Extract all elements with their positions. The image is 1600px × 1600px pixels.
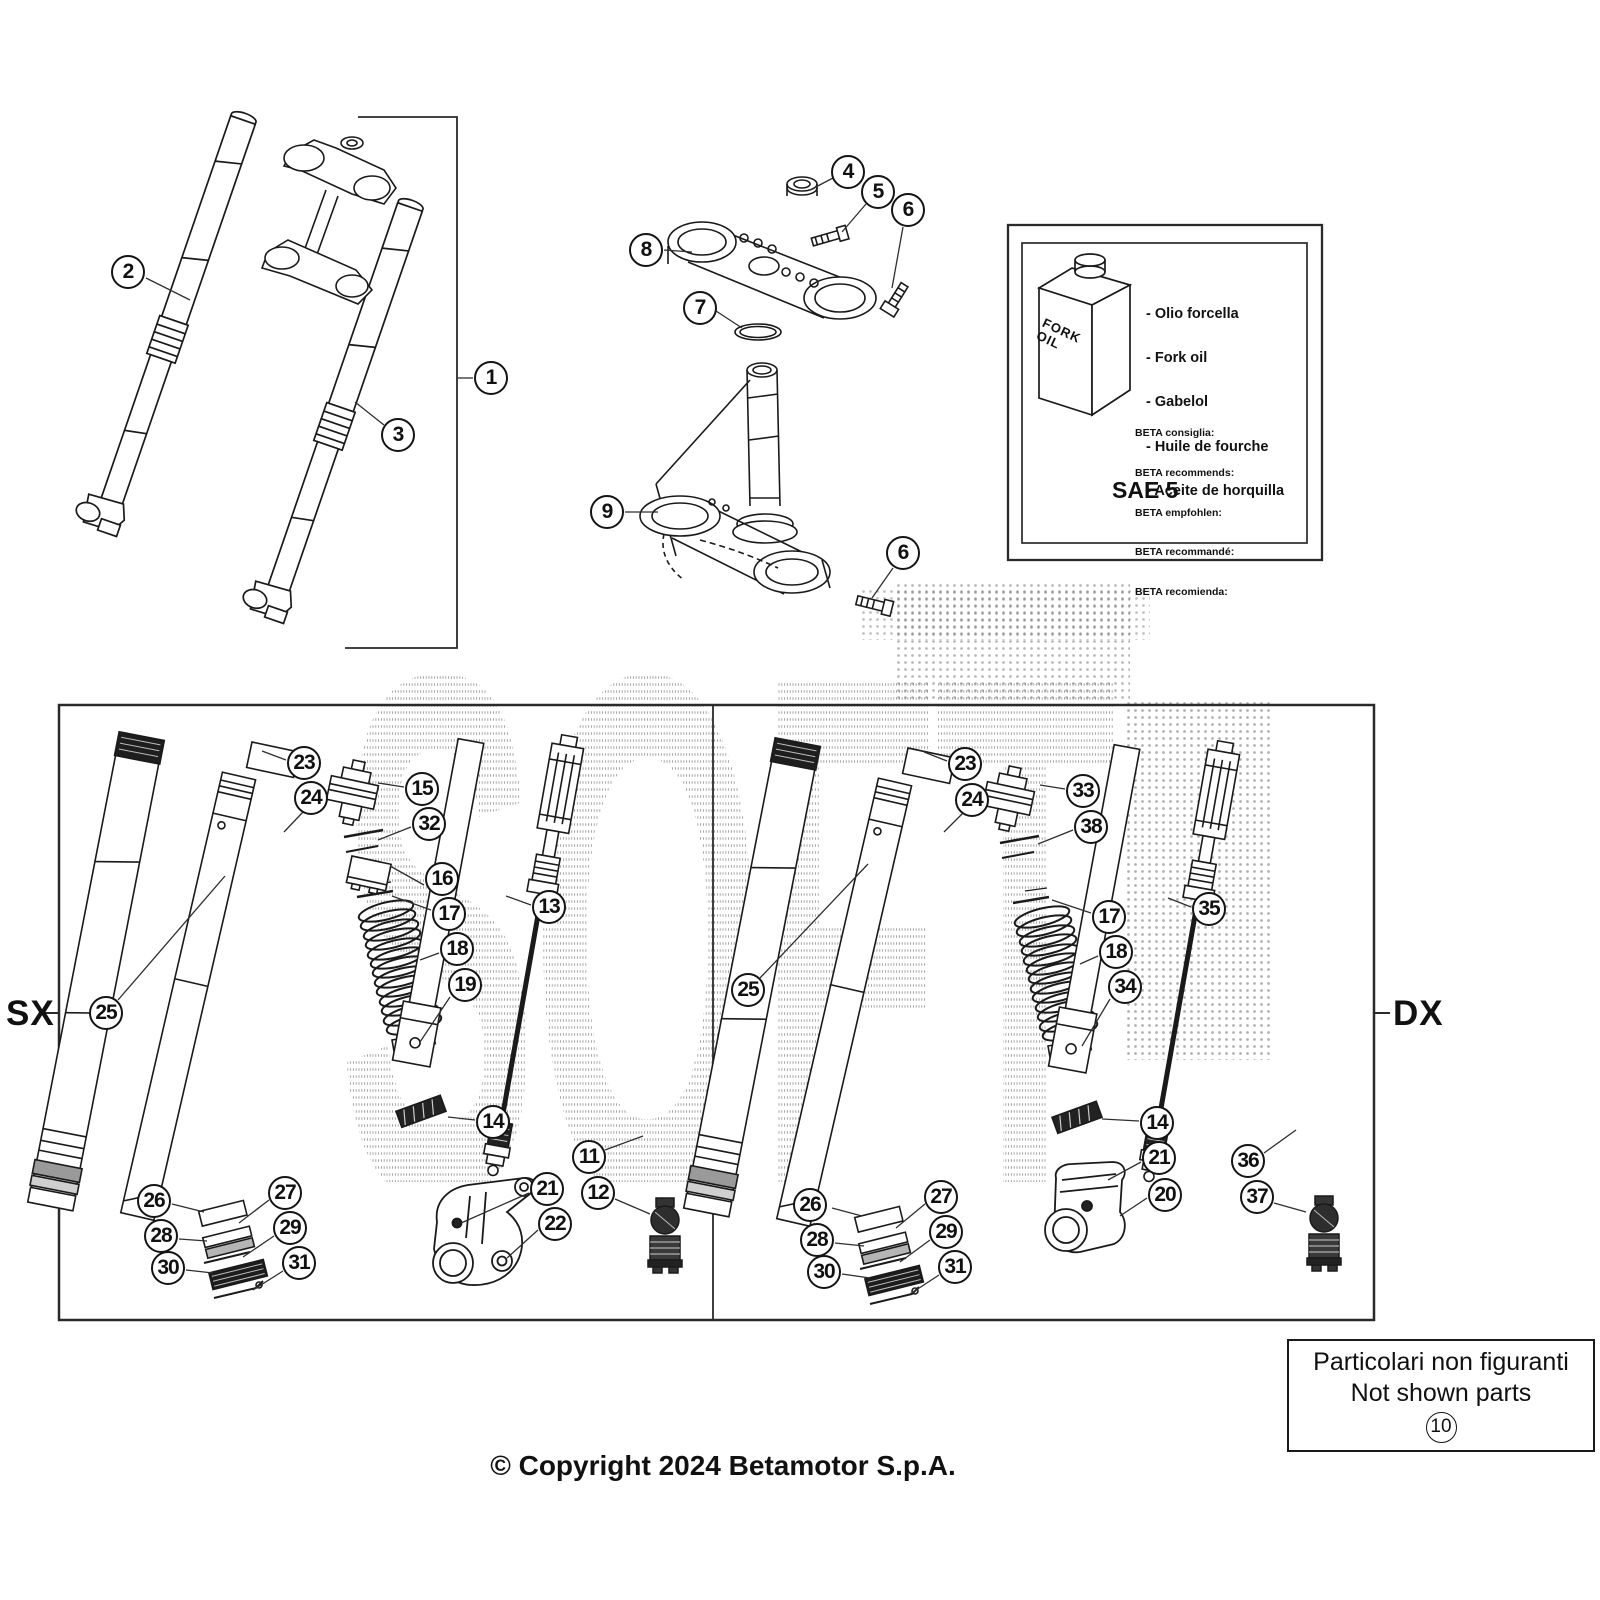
callout-20: 20 — [1148, 1178, 1182, 1212]
callout-26: 26 — [137, 1184, 171, 1218]
callout-layer: 1234568796232415321617181913251411122122… — [0, 0, 1600, 1600]
callout-37: 37 — [1240, 1180, 1274, 1214]
parts-diagram-page: { "page": { "copyright": "© Copyright 20… — [0, 0, 1600, 1600]
callout-24: 24 — [294, 781, 328, 815]
callout-2: 2 — [111, 255, 145, 289]
callout-19: 19 — [448, 968, 482, 1002]
callout-26: 26 — [793, 1188, 827, 1222]
callout-30: 30 — [807, 1255, 841, 1289]
callout-25: 25 — [731, 973, 765, 1007]
callout-11: 11 — [572, 1140, 606, 1174]
callout-35: 35 — [1192, 892, 1226, 926]
callout-16: 16 — [425, 862, 459, 896]
callout-34: 34 — [1108, 970, 1142, 1004]
callout-15: 15 — [405, 772, 439, 806]
callout-3: 3 — [381, 418, 415, 452]
callout-8: 8 — [629, 233, 663, 267]
callout-31: 31 — [938, 1250, 972, 1284]
callout-23: 23 — [948, 747, 982, 781]
callout-24: 24 — [955, 783, 989, 817]
callout-29: 29 — [929, 1215, 963, 1249]
callout-13: 13 — [532, 890, 566, 924]
callout-14: 14 — [1140, 1106, 1174, 1140]
callout-6: 6 — [891, 193, 925, 227]
callout-28: 28 — [800, 1223, 834, 1257]
callout-18: 18 — [1099, 935, 1133, 969]
callout-14: 14 — [476, 1105, 510, 1139]
callout-21: 21 — [530, 1172, 564, 1206]
callout-30: 30 — [151, 1251, 185, 1285]
callout-17: 17 — [432, 897, 466, 931]
callout-7: 7 — [683, 291, 717, 325]
callout-31: 31 — [282, 1246, 316, 1280]
callout-9: 9 — [590, 495, 624, 529]
callout-27: 27 — [924, 1180, 958, 1214]
callout-28: 28 — [144, 1219, 178, 1253]
callout-33: 33 — [1066, 774, 1100, 808]
callout-36: 36 — [1231, 1144, 1265, 1178]
callout-23: 23 — [287, 746, 321, 780]
callout-22: 22 — [538, 1207, 572, 1241]
callout-18: 18 — [440, 932, 474, 966]
callout-5: 5 — [861, 175, 895, 209]
callout-29: 29 — [273, 1211, 307, 1245]
callout-32: 32 — [412, 807, 446, 841]
callout-12: 12 — [581, 1176, 615, 1210]
callout-21: 21 — [1142, 1141, 1176, 1175]
callout-1: 1 — [474, 361, 508, 395]
callout-6: 6 — [886, 536, 920, 570]
callout-38: 38 — [1074, 810, 1108, 844]
callout-25: 25 — [89, 996, 123, 1030]
callout-4: 4 — [831, 155, 865, 189]
callout-17: 17 — [1092, 900, 1126, 934]
callout-27: 27 — [268, 1176, 302, 1210]
